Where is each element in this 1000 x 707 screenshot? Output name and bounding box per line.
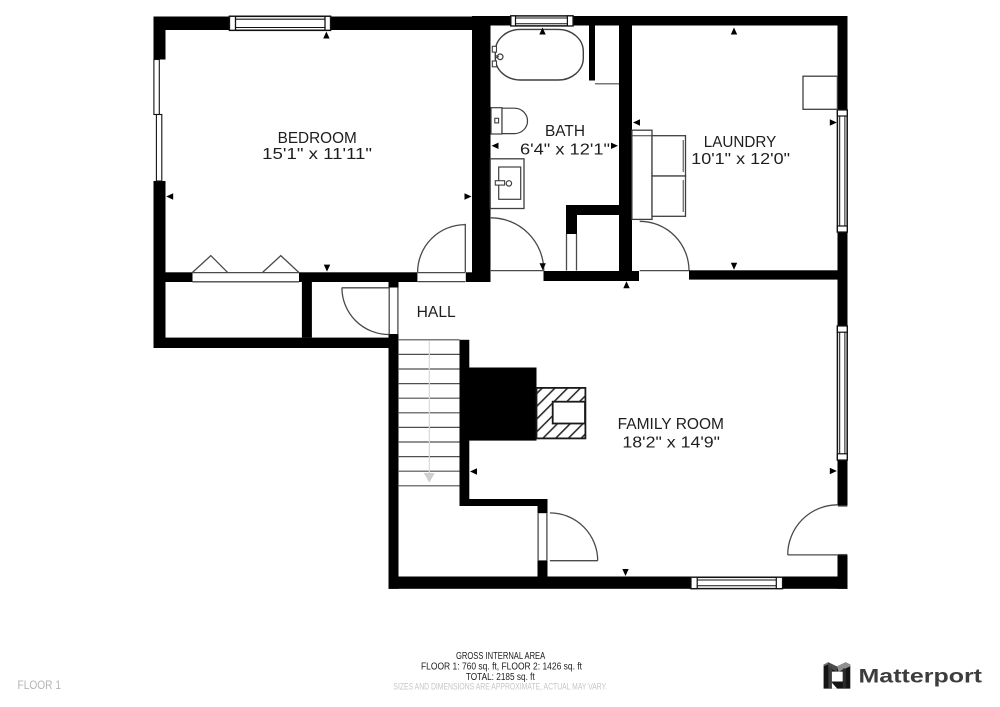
svg-text:Matterport: Matterport [859, 667, 983, 688]
svg-text:FLOOR 1: FLOOR 1 [18, 678, 62, 692]
svg-text:BATH: BATH [545, 123, 585, 140]
svg-text:BEDROOM: BEDROOM [278, 130, 357, 147]
svg-text:10'1" x 12'0": 10'1" x 12'0" [691, 151, 790, 168]
svg-text:FAMILY ROOM: FAMILY ROOM [618, 416, 724, 433]
svg-text:18'2" x 14'9": 18'2" x 14'9" [622, 435, 720, 452]
svg-text:6'4" x 12'1": 6'4" x 12'1" [520, 142, 610, 159]
svg-text:15'1" x 11'11": 15'1" x 11'11" [262, 146, 372, 163]
svg-text:LAUNDRY: LAUNDRY [704, 134, 777, 151]
svg-text:FLOOR 1: 760 sq. ft, FLOOR 2:: FLOOR 1: 760 sq. ft, FLOOR 2: 1426 sq. f… [421, 662, 582, 673]
svg-text:HALL: HALL [417, 304, 456, 321]
svg-text:GROSS INTERNAL AREA: GROSS INTERNAL AREA [456, 651, 546, 662]
svg-text:SIZES AND DIMENSIONS ARE APPRO: SIZES AND DIMENSIONS ARE APPROXIMATE, AC… [393, 681, 607, 691]
